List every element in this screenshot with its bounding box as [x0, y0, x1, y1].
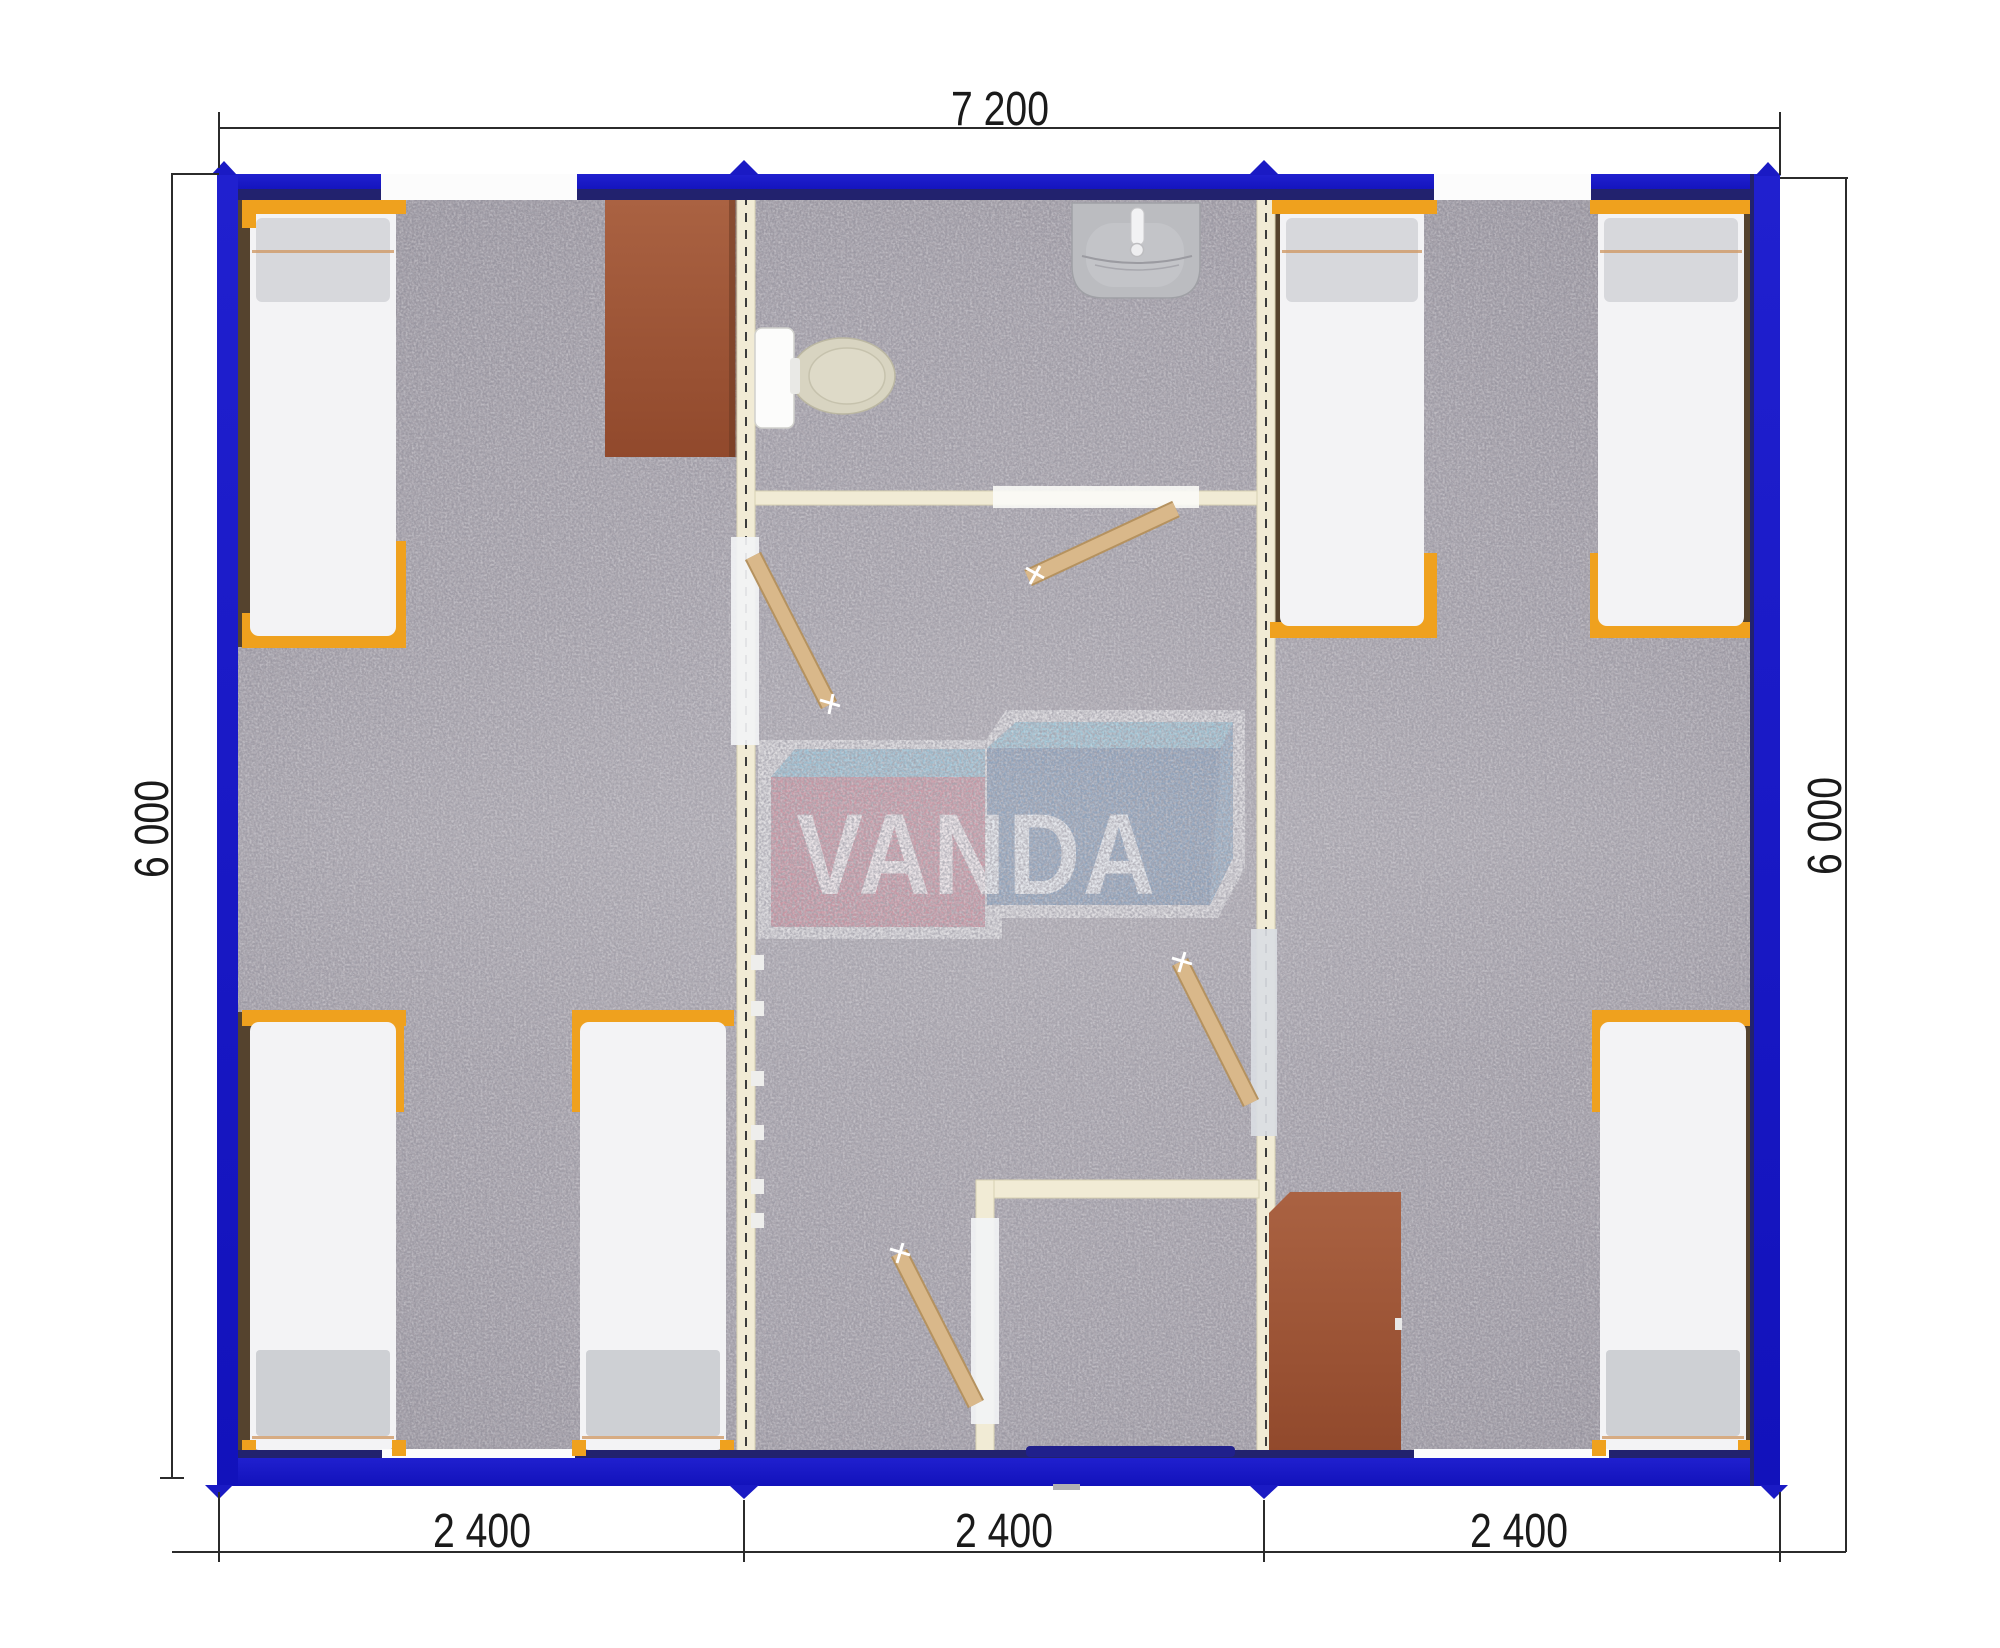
svg-text:6 000: 6 000	[1799, 777, 1852, 875]
svg-text:2 400: 2 400	[433, 1505, 531, 1558]
svg-text:6 000: 6 000	[126, 780, 179, 878]
svg-text:2 400: 2 400	[1470, 1505, 1568, 1558]
svg-text:2 400: 2 400	[955, 1505, 1053, 1558]
svg-text:7 200: 7 200	[951, 83, 1049, 136]
